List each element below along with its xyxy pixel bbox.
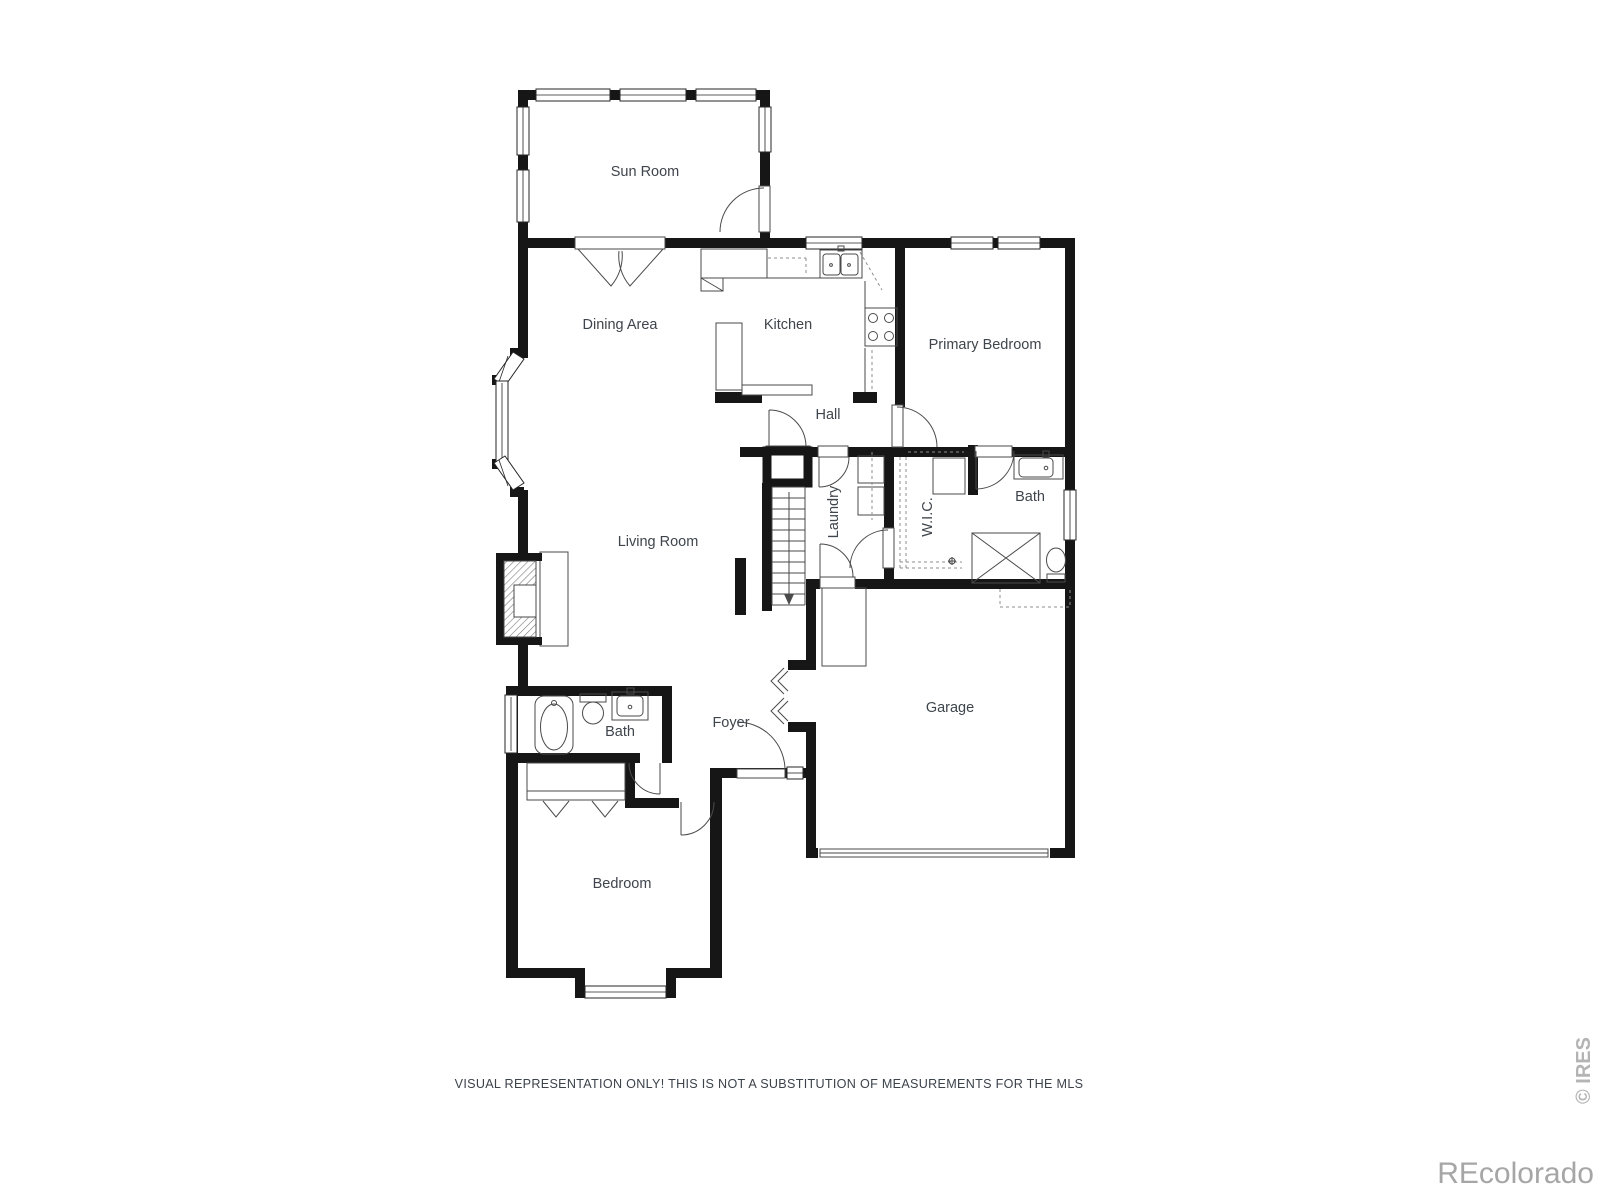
- floor-plan-page: Sun Room Dining Area Kitchen Primary Bed…: [0, 0, 1600, 1200]
- recolorado-watermark: REcolorado: [1437, 1157, 1594, 1190]
- floor-plan-canvas: Sun Room Dining Area Kitchen Primary Bed…: [0, 0, 1600, 1200]
- kitchen-sink-icon: [820, 246, 862, 278]
- vanity-sink-icon: [1014, 451, 1063, 479]
- kitchen-island: [716, 323, 812, 395]
- garage-door-icon: [818, 847, 1050, 859]
- room-label-hall: Hall: [816, 407, 841, 423]
- laundry-fixtures: [858, 452, 884, 520]
- fireplace-icon: [496, 552, 568, 646]
- room-label-foyer: Foyer: [712, 715, 749, 731]
- room-label-primary-bedroom: Primary Bedroom: [929, 337, 1042, 353]
- washer-icon: [858, 456, 884, 483]
- room-label-garage: Garage: [926, 700, 974, 716]
- dryer-icon: [858, 487, 884, 515]
- bifold-door-icon: [543, 801, 569, 817]
- windows: [494, 89, 1076, 998]
- room-label-dining-area: Dining Area: [583, 317, 659, 333]
- garage-fixtures: [818, 588, 1050, 859]
- room-label-laundry: Laundry: [826, 485, 842, 538]
- room-label-sun-room: Sun Room: [611, 164, 680, 180]
- room-label-living-room: Living Room: [618, 534, 699, 550]
- room-label-wic: W.I.C.: [920, 497, 936, 536]
- bifold-door-icon: [592, 801, 618, 817]
- room-label-kitchen: Kitchen: [764, 317, 812, 333]
- room-label-bath-lower: Bath: [605, 724, 635, 740]
- closet: [527, 763, 625, 817]
- disclaimer-text: VISUAL REPRESENTATION ONLY! THIS IS NOT …: [455, 1077, 1084, 1091]
- toilet-icon: [580, 694, 606, 724]
- stove-icon: [865, 308, 897, 346]
- room-label-bath-upper: Bath: [1015, 489, 1045, 505]
- ires-watermark: © IRES: [1573, 1037, 1595, 1104]
- stairs-arrow-icon: [784, 594, 794, 605]
- lower-bath-fixtures: [535, 688, 648, 754]
- stairs-down: [767, 451, 808, 605]
- toilet-icon: [1047, 548, 1066, 582]
- room-label-bedroom: Bedroom: [593, 876, 652, 892]
- shower-icon: [948, 533, 1040, 583]
- doors: [575, 186, 1014, 835]
- bathtub-icon: [535, 696, 573, 754]
